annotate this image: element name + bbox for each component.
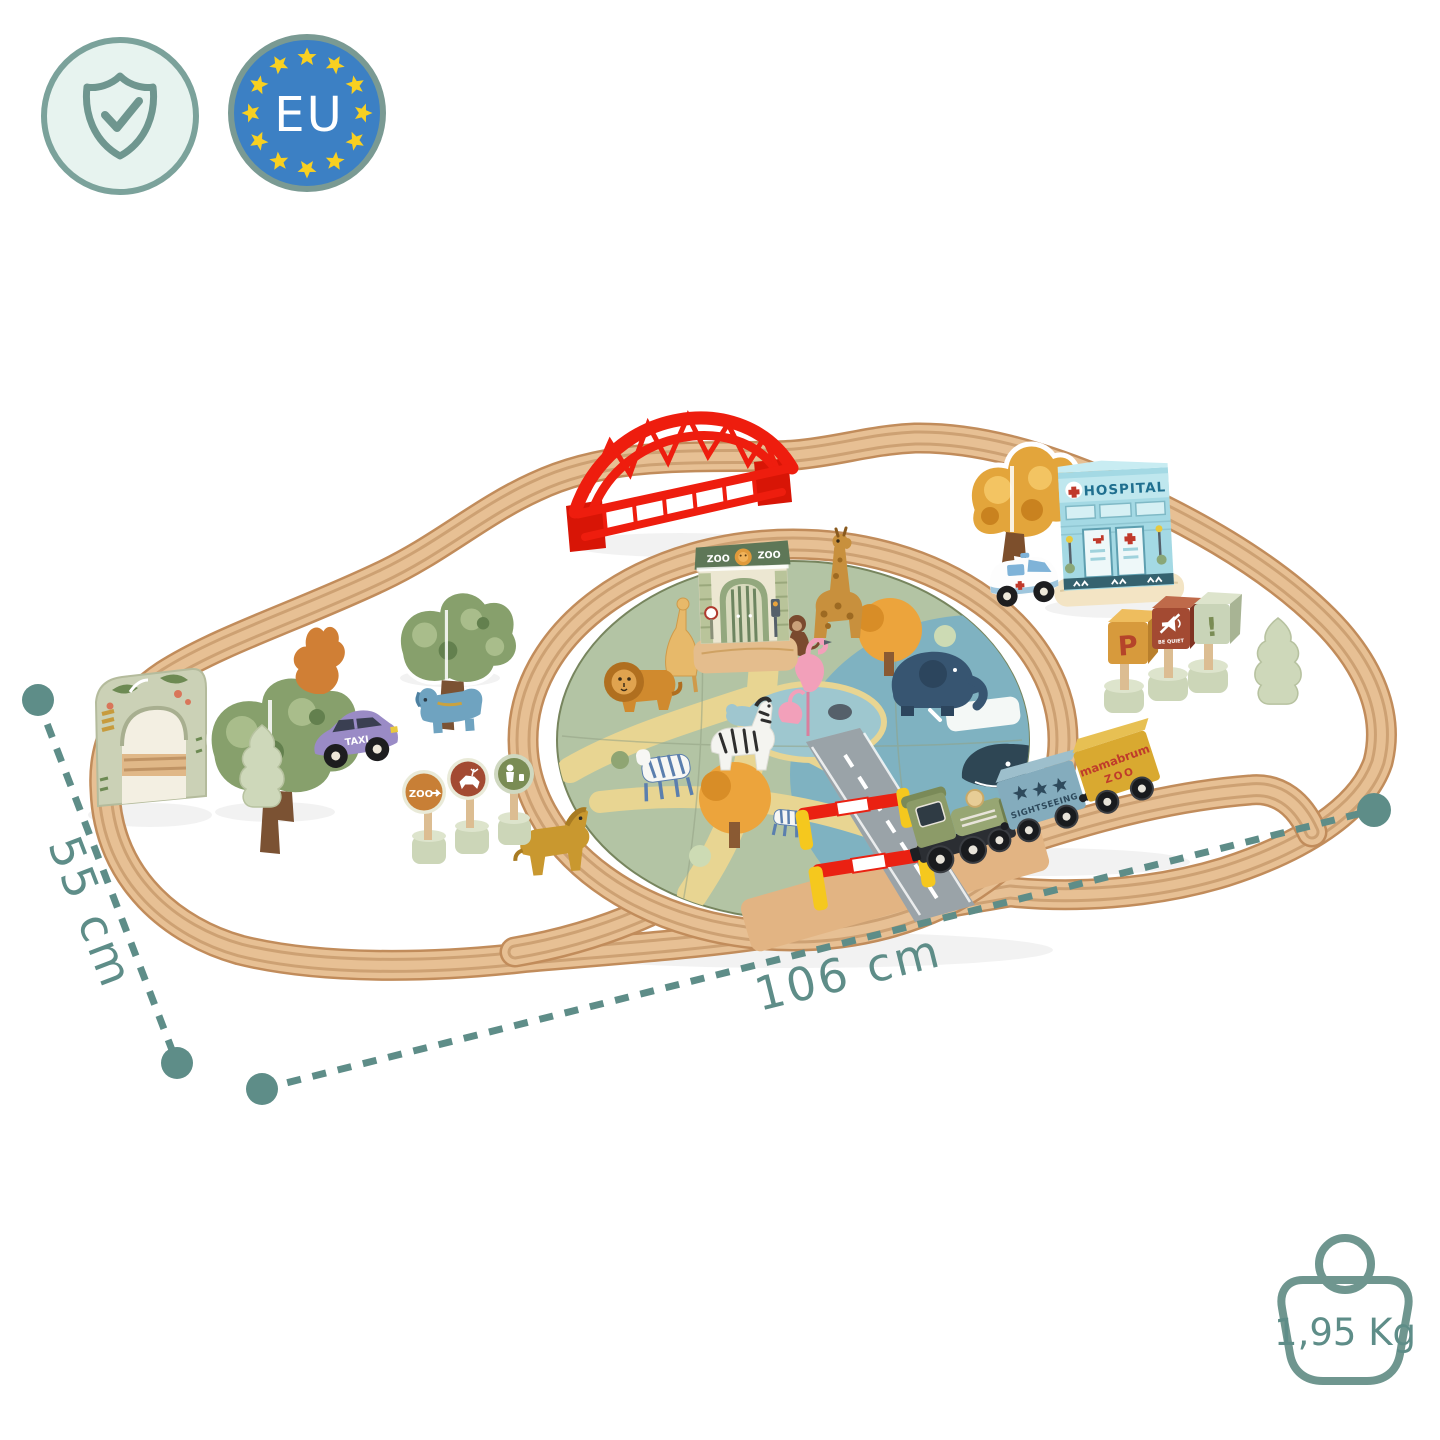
scene-illustration: TAXI ZOO [0,0,1440,1440]
sign-zoo-arrow: ZOO [402,770,446,864]
sign-zoo-label: ZOO [409,789,433,800]
weight-badge: 1,95 Kg [1274,1238,1416,1381]
bush-orange [294,627,345,694]
tunnel-arch [96,669,206,806]
taxi-light [390,726,398,733]
ambulance [988,551,1060,608]
zoo-gate: ZOO ZOO [690,540,798,674]
eu-label: EU [274,87,343,143]
warning-sign: ! [1188,592,1242,693]
weight-label: 1,95 Kg [1274,1311,1416,1354]
gate-zoo-left: ZOO [707,553,730,565]
gate-zoo-right: ZOO [757,550,780,562]
eu-badge: EU [231,37,383,189]
warning-label: ! [1205,613,1219,644]
hospital-building: HOSPITAL [1047,457,1184,608]
parking-label: P [1117,630,1139,662]
weight-icon [1281,1238,1408,1381]
sign-deer [447,758,489,854]
product-image: TAXI ZOO [0,0,1440,1440]
pine-tree-right [1255,618,1301,704]
quality-badge [44,40,196,192]
